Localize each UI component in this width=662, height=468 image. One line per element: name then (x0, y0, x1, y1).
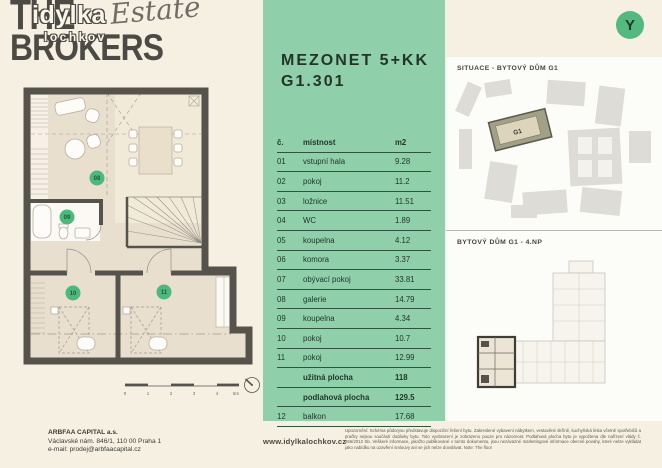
svg-text:08: 08 (94, 176, 101, 182)
svg-text:1: 1 (147, 391, 150, 396)
floor-overview-title: BYTOVÝ DŮM G1 - 4.NP (457, 239, 542, 246)
scale-bar: 0 1 2 3 4 5m (124, 384, 240, 396)
table-row: 10 pokoj 10.7 (277, 328, 431, 348)
highlighted-unit (478, 337, 515, 387)
room-badge-09: 09 (60, 210, 75, 225)
logo-estate-script: Estate (109, 0, 202, 31)
situace-panel: SITUACE - BYTOVÝ DŮM G1 G1 (446, 57, 662, 230)
room-badge-10: 10 (66, 286, 81, 301)
bathtub (33, 205, 51, 238)
room-badge-08: 08 (90, 171, 105, 186)
unit-info-panel: MEZONET 5+KK G1.301 č. místnost m2 01 vs… (263, 0, 445, 421)
svg-text:4: 4 (216, 391, 219, 396)
svg-text:11: 11 (161, 290, 168, 296)
chair (149, 337, 167, 350)
website-url: www.idylkalochkov.cz (263, 437, 346, 446)
dining-table (139, 127, 172, 174)
compass-icon (245, 378, 260, 393)
round-table (65, 139, 85, 159)
table-row: 12 balkon 17.68 (277, 406, 431, 427)
company-address: Václavské nám. 846/1, 110 00 Praha 1 (48, 438, 161, 447)
svg-text:5m: 5m (233, 391, 240, 396)
svg-text:3: 3 (193, 391, 196, 396)
brand-logo: THE BROKERS Estate idylka lochkov (8, 0, 263, 76)
table-row: 09 koupelna 4.34 (277, 308, 431, 328)
room-table: č. místnost m2 01 vstupní hala 9.28 02 p… (277, 133, 431, 427)
floor-overview-plan (451, 257, 656, 415)
table-row-summary: užitná plocha 118 (277, 367, 431, 387)
col-header-area: m2 (395, 138, 431, 147)
col-header-no: č. (277, 138, 303, 147)
site-map: G1 (451, 79, 656, 227)
company-email: e-mail: prodej@arbfaacapital.cz (48, 446, 161, 455)
footer-company-block: ARBFAA CAPITAL a.s. Václavské nám. 846/1… (48, 429, 161, 455)
table-row: 02 pokoj 11.2 (277, 171, 431, 191)
y-badge-letter: Y (625, 17, 635, 34)
unit-type: MEZONET 5+KK (281, 50, 429, 71)
floor-plan: 08 09 10 11 0 1 2 3 4 5m (15, 85, 260, 405)
table-row: 04 WC 1.89 (277, 210, 431, 230)
highlighted-building-g1: G1 (489, 109, 552, 151)
sink (75, 228, 90, 238)
table-row-summary: podlahová plocha 129.5 (277, 387, 431, 407)
svg-text:2: 2 (170, 391, 173, 396)
table-row: 05 koupelna 4.12 (277, 230, 431, 250)
svg-text:09: 09 (64, 215, 71, 221)
chair (77, 337, 95, 350)
svg-text:0: 0 (124, 391, 127, 396)
floor-overview-panel: BYTOVÝ DŮM G1 - 4.NP (446, 231, 662, 421)
col-header-room: místnost (303, 138, 395, 147)
y-compass-badge: Y (616, 11, 644, 39)
table-row: 07 obývací pokoj 33.81 (277, 269, 431, 289)
svg-text:10: 10 (70, 291, 77, 297)
toilet (59, 227, 68, 239)
unit-number: G1.301 (281, 71, 429, 92)
situace-title: SITUACE - BYTOVÝ DŮM G1 (457, 65, 558, 72)
table-row: 08 galerie 14.79 (277, 289, 431, 309)
unit-title: MEZONET 5+KK G1.301 (281, 50, 429, 92)
logo-lochkov: lochkov (44, 30, 107, 44)
disclaimer-text: Upozornění: Schéma půdorysu představuje … (345, 428, 641, 450)
table-row: 01 vstupní hala 9.28 (277, 152, 431, 172)
table-row: 06 komora 3.37 (277, 250, 431, 270)
logo-idylka: idylka (32, 1, 106, 30)
table-row: 03 ložnice 11.51 (277, 191, 431, 211)
room-badge-11: 11 (157, 285, 172, 300)
company-name: ARBFAA CAPITAL a.s. (48, 429, 161, 438)
table-header: č. místnost m2 (277, 133, 431, 152)
table-row: 11 pokoj 12.99 (277, 348, 431, 368)
